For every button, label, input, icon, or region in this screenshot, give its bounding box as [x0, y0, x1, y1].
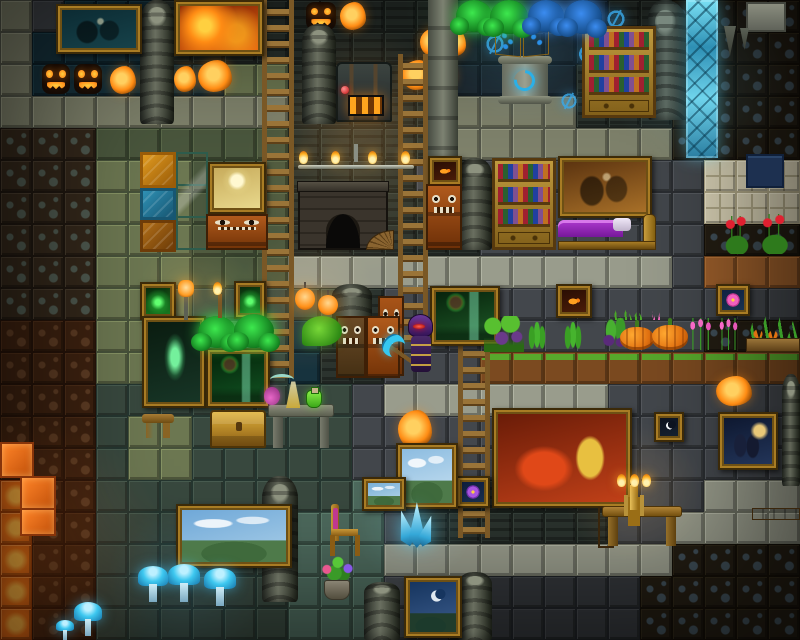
glowing-mushroom-1 — [138, 566, 168, 602]
bookshelf-1-drawers — [589, 100, 649, 113]
iron-chandelier-flame — [368, 151, 377, 164]
green-glow-painting-1 — [140, 282, 176, 320]
jack-o-glyph-2-mouth — [79, 82, 97, 89]
cursed-ghost-painting-art — [148, 322, 200, 402]
green-potion[interactable] — [306, 390, 322, 408]
flower-pot-bowl — [324, 580, 350, 600]
green-glass-panes — [176, 152, 208, 250]
iron-chandelier-stem — [354, 144, 358, 162]
tiki-totem-stack-e1 — [432, 195, 440, 204]
carrot-plant-1 — [524, 322, 550, 350]
wooden-table — [602, 506, 682, 546]
bookshelf-2-shelfrow — [498, 187, 549, 205]
forge[interactable] — [336, 62, 392, 122]
goldfish-painting-2-art — [562, 290, 586, 312]
jack-o-glyph-1-e1 — [46, 70, 53, 78]
stalactite-1 — [724, 26, 736, 56]
wall-torch-pole — [218, 294, 222, 318]
navy-inset-tile — [746, 154, 784, 188]
purple-bed-framebar — [558, 241, 656, 250]
pumpkin-2[interactable] — [652, 318, 688, 350]
moon-mountains-painting-art — [410, 582, 456, 632]
alchemy-station[interactable] — [264, 374, 302, 408]
desert-painting-art — [214, 168, 260, 208]
wood-totem-pole-mouth — [343, 338, 360, 344]
pumpkin-1-fruit — [620, 327, 654, 350]
tiki-tile-row-mouth — [218, 227, 255, 230]
wood-platform[interactable] — [752, 508, 800, 520]
mummy-larva-painting — [492, 408, 632, 508]
gold-candelabra-flame — [642, 474, 651, 487]
glowing-mushroom-2-cap — [168, 564, 200, 585]
snake-column-6 — [458, 572, 492, 640]
wooden-table-leg — [666, 517, 676, 546]
bookshelf-2 — [492, 158, 556, 250]
jack-o-glyph-2-e1 — [78, 70, 85, 78]
amber-glyph-4 — [340, 2, 366, 30]
tiki-tile-row — [206, 214, 268, 250]
stalactite-2 — [740, 28, 749, 50]
glowing-mushroom-3 — [204, 568, 236, 606]
wood-totem-pole-e1 — [341, 326, 348, 334]
tulip-patch-2 — [716, 318, 740, 350]
planter-box — [746, 314, 800, 352]
amber-glyph-1 — [110, 66, 136, 94]
bookshelf-2-shelfrow — [498, 209, 549, 227]
green-glow-painting-1-art — [146, 288, 170, 314]
glowing-mushroom-3-cap — [204, 568, 236, 589]
glowing-mushroom-2-stem — [180, 583, 188, 602]
gold-candelabra-flame — [630, 474, 639, 487]
iron-chandelier-flame — [331, 151, 340, 164]
glowing-mushroom-5 — [56, 620, 74, 640]
forge-gemdot — [341, 86, 349, 94]
orange-block-1 — [0, 442, 34, 478]
flower-pot — [314, 554, 360, 600]
flower-painting-purple-art — [462, 482, 484, 502]
jungle-night-painting — [206, 348, 270, 408]
iron-chandelier-flame — [401, 151, 410, 164]
wall-torch — [210, 282, 228, 318]
book-pedestal — [502, 56, 548, 104]
pumpkin-1[interactable] — [620, 320, 654, 350]
gold-candelabra-flame — [617, 474, 626, 487]
warrior-painting — [558, 156, 652, 218]
orange-block-2 — [20, 476, 56, 510]
flower-painting-purple — [456, 476, 490, 508]
hanging-slab — [746, 2, 786, 32]
snake-column-1 — [140, 0, 174, 124]
game-viewport — [0, 0, 800, 640]
wall-torch-flame — [213, 282, 222, 295]
golden-chair[interactable] — [328, 504, 362, 556]
gold-candelabra[interactable] — [616, 474, 652, 510]
skeleton-battle-painting — [56, 4, 142, 54]
rose-bush-2 — [758, 214, 792, 254]
grass-tuft — [612, 306, 648, 320]
flower-pot-blooms — [314, 554, 360, 582]
cursed-ghost-painting — [142, 316, 206, 408]
iron-chandelier-bar — [298, 165, 415, 169]
tiki-totem-stack-mouth — [434, 207, 455, 213]
ladder-3[interactable] — [458, 342, 490, 538]
paper-lantern-1[interactable] — [292, 282, 318, 318]
flower-painting-pink — [716, 284, 750, 316]
snake-column-3 — [458, 158, 492, 250]
wood-totem-pole-e2 — [354, 326, 361, 334]
player-character-eye — [413, 324, 425, 329]
warrior-painting-art — [564, 162, 646, 212]
paper-lantern-1-glowb — [295, 288, 316, 310]
jack-o-glyph-2 — [74, 64, 102, 94]
chimney-arch — [326, 214, 360, 248]
fire-demon-painting — [174, 0, 264, 56]
amber-wall-glow-2 — [716, 376, 752, 406]
book-pedestal-spiral — [510, 66, 540, 96]
jack-o-glyph-1-e2 — [59, 70, 66, 78]
ice-brick-column — [686, 0, 718, 158]
mountain-lake-painting-art — [402, 449, 452, 503]
flytrap-plant — [484, 316, 524, 352]
orange-block-3 — [20, 508, 56, 536]
rune-glyph-6 — [558, 90, 580, 112]
tiki-totem-stack-e2 — [448, 195, 456, 204]
jack-o-glyph-1 — [42, 64, 70, 94]
purple-bed-pillow — [613, 218, 631, 231]
glowing-mushroom-4 — [74, 602, 102, 636]
moon-mountains-painting — [404, 576, 462, 638]
planter-box-greens — [748, 314, 798, 339]
glowing-mushroom-1-stem — [149, 584, 156, 602]
stone-table-leg — [320, 417, 330, 448]
book-pedestal-base — [498, 96, 552, 104]
snake-column-7 — [782, 374, 800, 486]
goldfish-painting-2 — [556, 284, 592, 318]
jack-o-glyph-1-mouth — [47, 82, 65, 89]
green-glow-painting-2-art — [240, 287, 260, 313]
planter-box-box — [746, 338, 800, 352]
glowing-mushroom-5-stem — [63, 630, 67, 640]
pom-tree-green-4 — [234, 314, 274, 348]
tiki-tile-row-e2 — [244, 220, 259, 224]
knight-moon-painting-art — [724, 418, 772, 464]
carrot-plant-2 — [560, 322, 586, 350]
tulip-patch-1 — [686, 318, 714, 350]
golden-chest[interactable] — [210, 410, 266, 448]
knight-moon-painting — [718, 412, 778, 470]
golden-chair-leg — [330, 535, 335, 556]
bookshelf-1-shelfrow — [589, 55, 649, 73]
rose-bush-1 — [722, 216, 752, 254]
bookshelf-2-shelfrow — [498, 164, 549, 182]
skeleton-battle-painting-art — [62, 10, 136, 48]
alchemy-station-tube — [270, 374, 294, 386]
goldfish-painting — [428, 156, 462, 186]
glowing-mushroom-4-cap — [74, 602, 102, 621]
landscape-day-painting-art — [182, 510, 286, 562]
mummy-larva-painting-art — [498, 414, 626, 502]
bookshelf-1-shelfrow — [589, 77, 649, 95]
gold-candelabra-stem — [630, 485, 639, 510]
wooden-stool[interactable] — [142, 414, 174, 438]
crystal-shard[interactable] — [396, 502, 434, 548]
iron-chandelier-flame — [299, 151, 308, 164]
iron-chandelier[interactable] — [294, 144, 418, 188]
wooden-table-leg — [608, 517, 618, 546]
jungle-night-painting-art — [212, 354, 264, 402]
amber-block — [140, 152, 176, 188]
fire-demon-painting-art — [180, 6, 258, 50]
amber-glyph-3 — [174, 66, 196, 92]
paper-lantern-2[interactable] — [316, 290, 340, 322]
tiki-tile-row-e1 — [215, 220, 230, 224]
wall-lamp-glowb — [178, 280, 193, 297]
sapphire-block — [140, 188, 176, 220]
paper-lantern-2-glowb — [318, 295, 337, 315]
object-layer — [0, 0, 800, 640]
crescent-moon-painting-art — [660, 418, 678, 436]
forge-slots — [348, 95, 383, 115]
amber-ore-block — [140, 220, 176, 252]
glowing-mushroom-3-stem — [216, 587, 224, 606]
pumpkin-2-fruit — [652, 325, 688, 350]
glowing-mushroom-4-stem — [85, 619, 92, 636]
alchemy-station-f1 — [264, 387, 280, 406]
tiki-totem-stack-2-e2 — [387, 326, 395, 334]
player-character-bodyp — [411, 336, 431, 372]
bookshelf-1 — [582, 26, 656, 118]
snake-column-2 — [302, 24, 336, 124]
golden-chair-leg — [355, 535, 360, 556]
snake-column-8 — [364, 582, 400, 640]
flower-painting-pink-art — [722, 290, 744, 310]
tiki-totem-stack — [426, 184, 462, 250]
landscape-day-painting — [176, 504, 292, 568]
glowing-mushroom-1-cap — [138, 566, 168, 586]
jack-o-glyph-2-e2 — [91, 70, 98, 78]
bookshelf-2-drawers — [498, 232, 549, 245]
glowing-mushroom-2 — [168, 564, 200, 602]
tiki-totem-stack-2-e1 — [372, 326, 380, 334]
crescent-moon-painting — [654, 412, 684, 442]
amber-egg-tile — [198, 60, 232, 92]
purple-bed[interactable] — [558, 214, 656, 250]
player-character — [400, 314, 444, 378]
stone-table-leg — [273, 417, 283, 448]
desert-painting — [208, 162, 266, 214]
pom-tree-blue-2 — [564, 0, 602, 34]
stone-table — [268, 404, 334, 448]
jack-o-glyph-3-e2 — [324, 8, 331, 15]
goldfish-painting-art — [434, 162, 456, 180]
wall-lamp[interactable] — [176, 280, 196, 320]
jack-o-glyph-3-e1 — [311, 8, 318, 15]
